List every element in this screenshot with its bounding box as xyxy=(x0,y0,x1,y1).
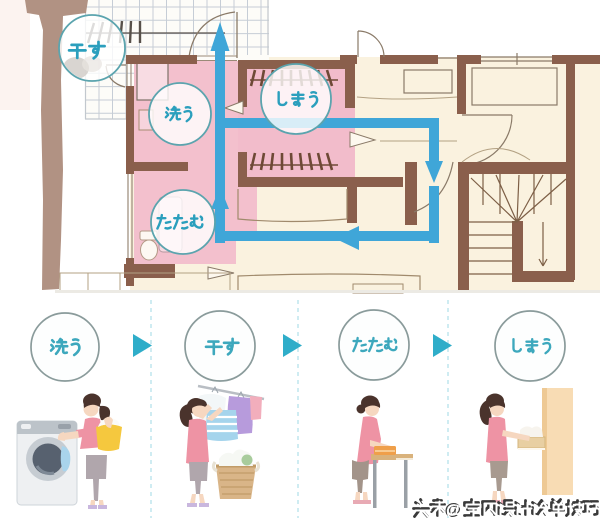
svg-text:@: @ xyxy=(446,501,463,520)
